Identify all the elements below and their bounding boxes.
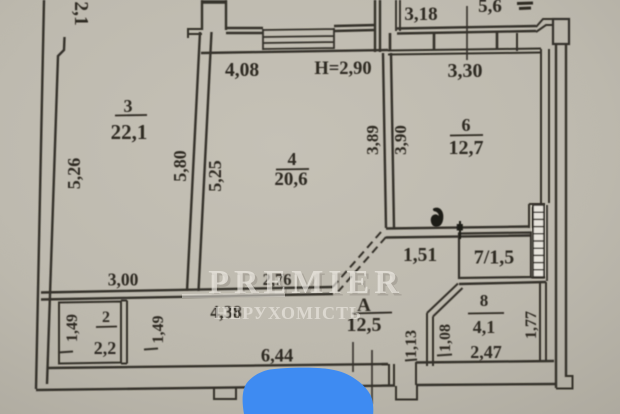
svg-text:5,25: 5,25 <box>205 160 225 192</box>
svg-text:7/1,5: 7/1,5 <box>474 247 515 269</box>
svg-text:12,7: 12,7 <box>449 137 484 159</box>
svg-text:3,90: 3,90 <box>391 125 410 155</box>
svg-text:5,26: 5,26 <box>64 158 84 190</box>
svg-text:5,6: 5,6 <box>478 0 502 17</box>
svg-text:2: 2 <box>102 309 110 326</box>
svg-text:2,2: 2,2 <box>94 338 117 358</box>
svg-text:Н=2,90: Н=2,90 <box>314 59 371 79</box>
svg-text:6: 6 <box>462 115 471 135</box>
svg-text:1,77: 1,77 <box>523 311 540 339</box>
svg-text:20,6: 20,6 <box>274 169 307 190</box>
svg-text:8: 8 <box>480 291 489 310</box>
svg-text:3,30: 3,30 <box>448 60 483 82</box>
svg-text:1,08: 1,08 <box>437 324 454 352</box>
svg-text:3,00: 3,00 <box>108 270 139 290</box>
svg-text:3,89: 3,89 <box>363 125 382 155</box>
svg-text:4: 4 <box>288 149 297 169</box>
svg-text:3: 3 <box>124 96 133 116</box>
svg-text:22,1: 22,1 <box>111 120 148 144</box>
svg-text:3,18: 3,18 <box>404 4 437 25</box>
svg-text:1,49: 1,49 <box>150 316 167 344</box>
svg-text:2,47: 2,47 <box>470 342 502 362</box>
svg-text:НЕРУХОМІСТЬ: НЕРУХОМІСТЬ <box>214 303 362 323</box>
svg-text:2,1: 2,1 <box>70 1 91 25</box>
svg-text:1,49: 1,49 <box>64 314 81 342</box>
svg-text:1,13: 1,13 <box>403 330 420 358</box>
svg-text:5,80: 5,80 <box>170 150 190 182</box>
svg-text:1,51: 1,51 <box>403 245 437 266</box>
svg-text:6,44: 6,44 <box>261 347 293 367</box>
svg-text:4,1: 4,1 <box>473 317 496 337</box>
svg-text:4,08: 4,08 <box>225 60 259 81</box>
